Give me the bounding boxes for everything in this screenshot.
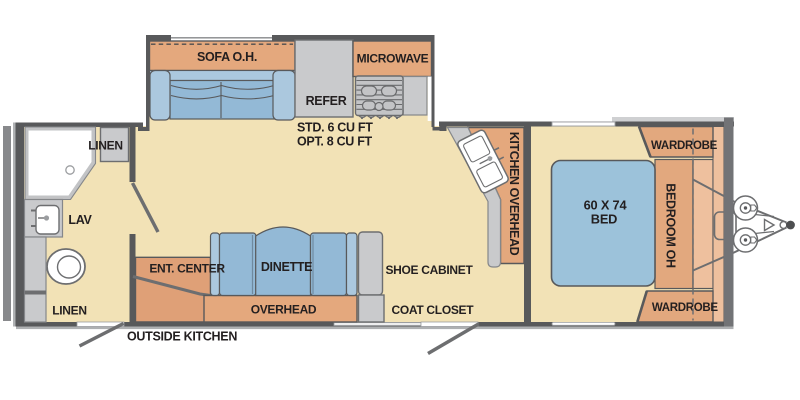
svg-text:OUTSIDE KITCHEN: OUTSIDE KITCHEN xyxy=(127,330,237,344)
svg-text:SOFA O.H.: SOFA O.H. xyxy=(197,50,257,64)
svg-text:LINEN: LINEN xyxy=(88,139,123,153)
svg-text:OPT. 8 CU FT: OPT. 8 CU FT xyxy=(297,135,373,149)
svg-text:KITCHEN OVERHEAD: KITCHEN OVERHEAD xyxy=(507,132,521,256)
svg-text:DINETTE: DINETTE xyxy=(261,260,312,274)
svg-text:ENT. CENTER: ENT. CENTER xyxy=(149,262,225,276)
svg-text:60 X 74: 60 X 74 xyxy=(584,198,628,213)
svg-text:COAT CLOSET: COAT CLOSET xyxy=(391,303,474,317)
svg-text:BED: BED xyxy=(591,212,617,227)
svg-text:LAV: LAV xyxy=(68,213,92,227)
svg-text:WARDROBE: WARDROBE xyxy=(651,140,718,152)
svg-text:OVERHEAD: OVERHEAD xyxy=(251,303,317,317)
svg-text:STD. 6 CU FT: STD. 6 CU FT xyxy=(297,121,373,135)
svg-text:REFER: REFER xyxy=(306,94,347,108)
svg-text:SHOE CABINET: SHOE CABINET xyxy=(385,263,473,277)
svg-text:BEDROOM OH: BEDROOM OH xyxy=(664,183,678,268)
svg-text:MICROWAVE: MICROWAVE xyxy=(357,52,429,66)
svg-text:LINEN: LINEN xyxy=(52,304,87,318)
svg-text:WARDROBE: WARDROBE xyxy=(652,302,719,314)
